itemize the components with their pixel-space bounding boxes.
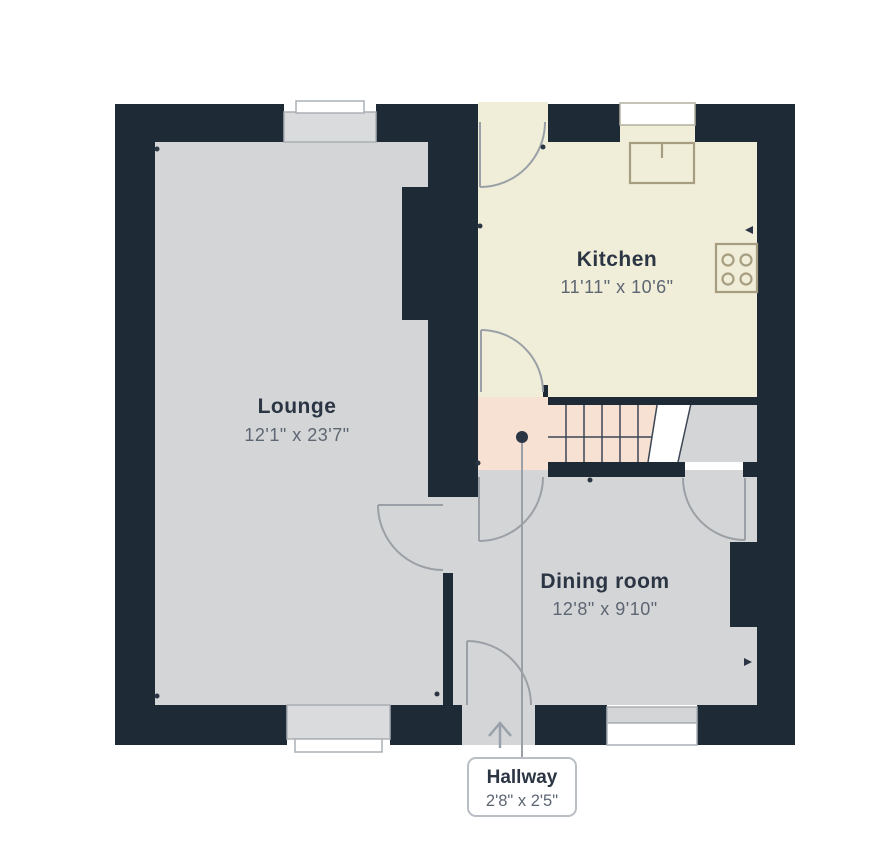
kitchen-dims: 11'11" x 10'6" xyxy=(560,277,673,297)
lounge-bay-window-bottom-glass xyxy=(295,739,382,752)
corner-marker-dot xyxy=(155,147,160,152)
wall-right xyxy=(757,104,795,745)
kitchen-window-recess-floor xyxy=(620,125,695,142)
wall-top-kitchen-left xyxy=(548,104,620,142)
lounge-floor xyxy=(155,142,428,705)
lounge-bay-window-bottom xyxy=(287,705,390,739)
dining-room-dims: 12'8" x 9'10" xyxy=(552,599,657,619)
wall-bottom-dining-right xyxy=(697,705,795,745)
dining-window-glass xyxy=(607,723,697,745)
lounge-label: Lounge xyxy=(258,395,337,418)
hallway-label-dims: 2'8" x 2'5" xyxy=(486,792,558,810)
wall-top-lounge-right xyxy=(376,104,478,142)
wall-bottom-lounge-right xyxy=(390,705,462,745)
kitchen-window xyxy=(620,103,695,125)
dining-room-label: Dining room xyxy=(540,570,669,593)
dining-window-sill xyxy=(607,707,697,723)
corner-marker-dot xyxy=(435,692,440,697)
wall-stub-lounge-hall xyxy=(443,573,453,705)
hallway-marker-dot xyxy=(516,431,528,443)
corner-marker-dot xyxy=(588,478,593,483)
lounge-bay-window-top-glass xyxy=(296,101,364,113)
lounge-dims: 12'1" x 23'7" xyxy=(244,425,349,445)
lounge-bay-window-top xyxy=(284,112,376,142)
stairs-top-bar xyxy=(548,397,757,405)
wall-bottom-dining-left xyxy=(535,705,607,745)
lounge-chimney-breast xyxy=(402,187,428,320)
hallway-label-name: Hallway xyxy=(487,767,558,788)
floor-plan-canvas: Hallway 2'8" x 2'5" Lounge 12'1" x 23'7"… xyxy=(0,0,886,848)
dining-chimney-breast xyxy=(730,542,757,627)
stairs-bottom-bar xyxy=(548,462,685,477)
kitchen-label: Kitchen xyxy=(577,248,658,271)
corner-marker-dot xyxy=(541,145,546,150)
wall-left xyxy=(115,104,155,745)
dining-door-jamb-stub xyxy=(743,462,757,477)
wall-bottom-lounge-left xyxy=(115,705,287,745)
corner-marker-dot xyxy=(478,224,483,229)
kitchen-floor-left xyxy=(478,102,548,397)
corner-marker-dot xyxy=(155,694,160,699)
corner-marker-dot xyxy=(476,461,481,466)
hallway-floor xyxy=(477,397,548,470)
wall-divider-lounge-kitchen xyxy=(428,142,478,497)
floor-plan-viewer: Hallway 2'8" x 2'5" Lounge 12'1" x 23'7"… xyxy=(0,0,886,848)
